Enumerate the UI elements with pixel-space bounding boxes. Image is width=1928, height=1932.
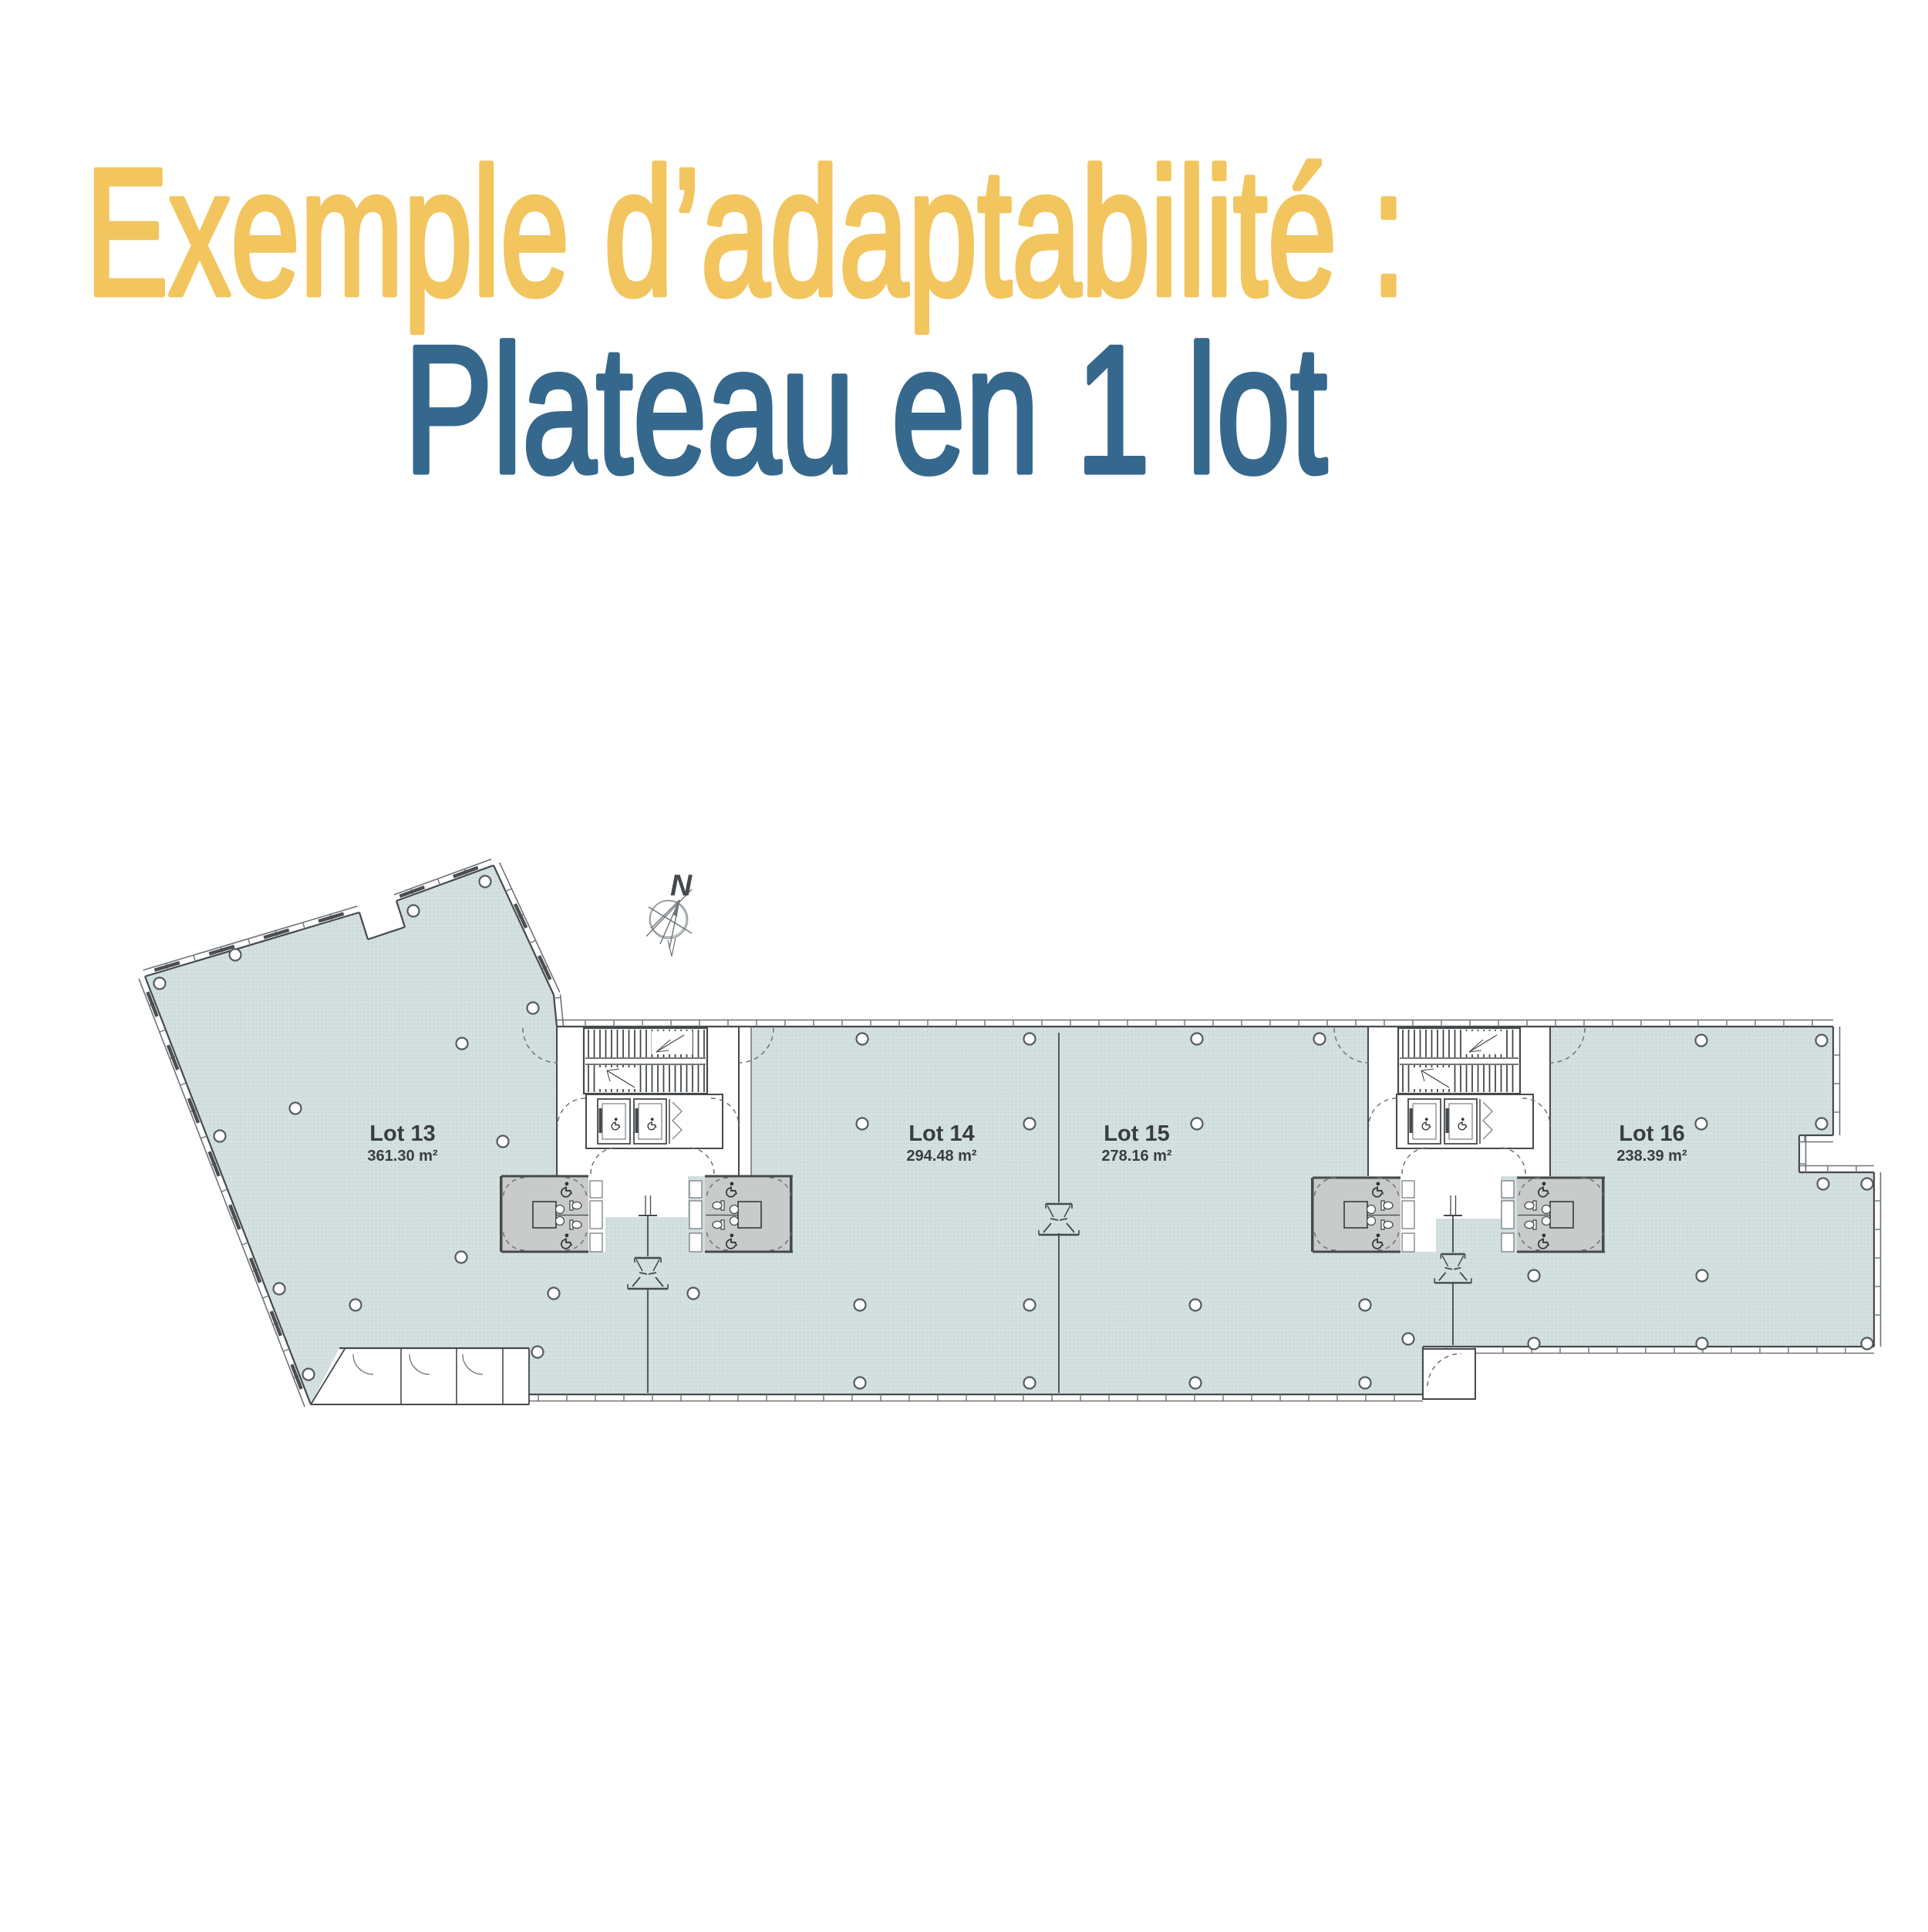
svg-text:238.39 m²: 238.39 m² — [1616, 1148, 1687, 1165]
svg-text:Lot 16: Lot 16 — [1619, 1121, 1684, 1146]
svg-text:Lot 13: Lot 13 — [369, 1121, 435, 1146]
svg-text:Lot 15: Lot 15 — [1104, 1121, 1169, 1146]
svg-text:278.16 m²: 278.16 m² — [1101, 1148, 1172, 1165]
svg-text:Plateau en 1 lot: Plateau en 1 lot — [404, 308, 1327, 511]
svg-text:N: N — [670, 869, 693, 902]
svg-text:Exemple d’adaptabilité :: Exemple d’adaptabilité : — [86, 130, 1406, 333]
svg-text:Lot 14: Lot 14 — [908, 1121, 974, 1146]
svg-text:294.48 m²: 294.48 m² — [906, 1148, 977, 1165]
svg-text:361.30 m²: 361.30 m² — [367, 1148, 438, 1165]
